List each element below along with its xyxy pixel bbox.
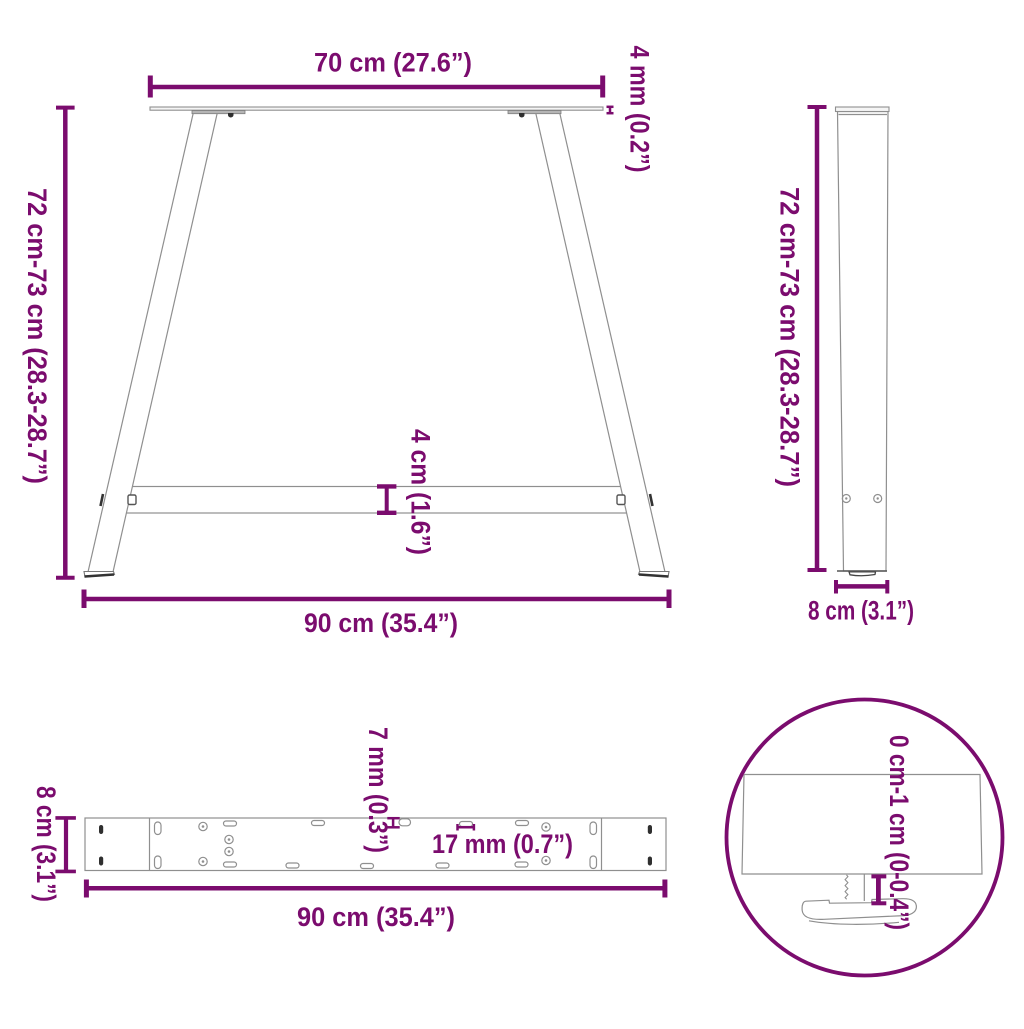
svg-text:4 mm (0.2”): 4 mm (0.2”) <box>625 46 655 173</box>
svg-text:72 cm-73 cm (28.3-28.7”): 72 cm-73 cm (28.3-28.7”) <box>22 188 52 484</box>
svg-text:0 cm-1 cm (0-0.4”): 0 cm-1 cm (0-0.4”) <box>884 735 914 930</box>
svg-text:90 cm (35.4”): 90 cm (35.4”) <box>297 902 455 932</box>
svg-text:17 mm (0.7”): 17 mm (0.7”) <box>432 829 573 859</box>
svg-text:70 cm (27.6”): 70 cm (27.6”) <box>314 48 472 78</box>
svg-text:8 cm (3.1”): 8 cm (3.1”) <box>31 786 61 902</box>
svg-text:7 mm (0.3”): 7 mm (0.3”) <box>363 727 393 853</box>
svg-text:72 cm-73 cm (28.3-28.7”): 72 cm-73 cm (28.3-28.7”) <box>775 187 805 487</box>
svg-text:90 cm (35.4”): 90 cm (35.4”) <box>304 608 458 638</box>
svg-text:4 cm (1.6”): 4 cm (1.6”) <box>406 429 436 555</box>
svg-text:8 cm (3.1”): 8 cm (3.1”) <box>808 596 914 626</box>
